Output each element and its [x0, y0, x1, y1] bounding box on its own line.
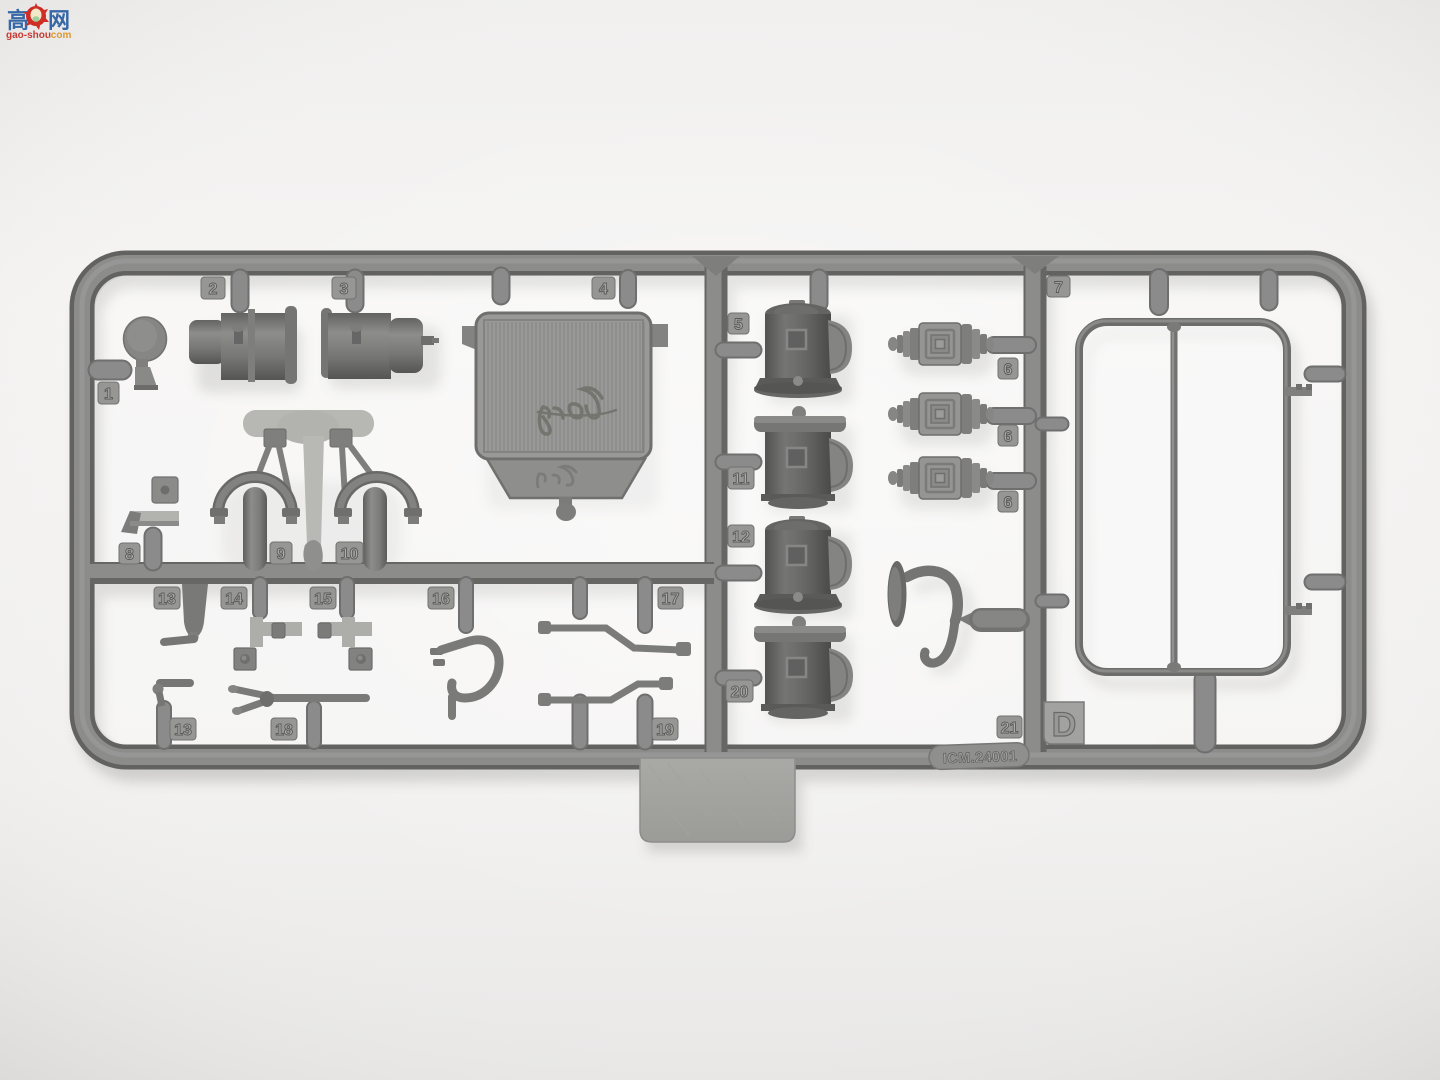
svg-text:16: 16 — [432, 591, 450, 608]
svg-text:gao-shou: gao-shou — [6, 30, 51, 41]
svg-text:5: 5 — [734, 316, 743, 333]
svg-text:ICM.24001: ICM.24001 — [943, 749, 1018, 768]
svg-text:9: 9 — [277, 546, 286, 563]
svg-text:18: 18 — [275, 722, 293, 739]
svg-text:6: 6 — [1004, 428, 1013, 445]
svg-text:11: 11 — [733, 471, 750, 488]
svg-text:20: 20 — [731, 684, 749, 701]
svg-text:6: 6 — [1004, 361, 1013, 378]
svg-text:1: 1 — [104, 386, 113, 403]
svg-text:D: D — [1052, 706, 1077, 744]
svg-text:15: 15 — [314, 591, 332, 608]
svg-text:7: 7 — [1054, 279, 1063, 296]
svg-text:.com: .com — [48, 30, 71, 41]
svg-text:21: 21 — [1001, 720, 1019, 737]
svg-text:14: 14 — [225, 591, 243, 608]
svg-text:19: 19 — [656, 722, 674, 739]
svg-text:10: 10 — [341, 546, 359, 563]
svg-text:8: 8 — [125, 546, 134, 563]
svg-text:12: 12 — [732, 529, 750, 546]
svg-text:17: 17 — [662, 591, 680, 608]
svg-text:6: 6 — [1004, 494, 1013, 511]
svg-text:13: 13 — [158, 591, 176, 608]
svg-text:4: 4 — [599, 281, 608, 298]
svg-text:3: 3 — [340, 281, 349, 298]
svg-text:13: 13 — [174, 722, 192, 739]
svg-text:2: 2 — [209, 281, 218, 298]
